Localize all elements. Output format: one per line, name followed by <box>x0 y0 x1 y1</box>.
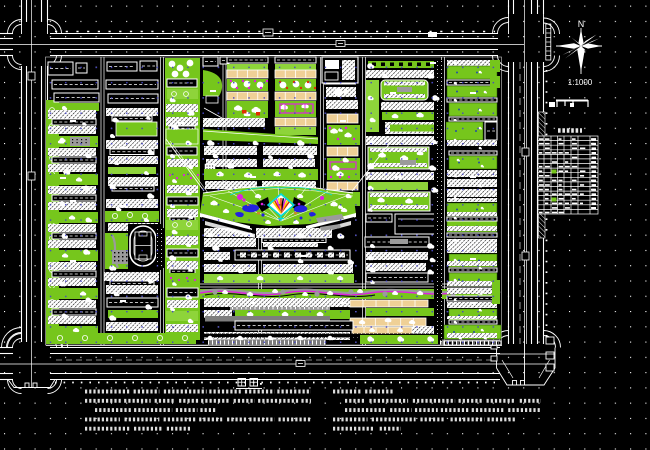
svg-text:N: N <box>578 19 585 29</box>
svg-text:1:1000: 1:1000 <box>568 78 593 87</box>
